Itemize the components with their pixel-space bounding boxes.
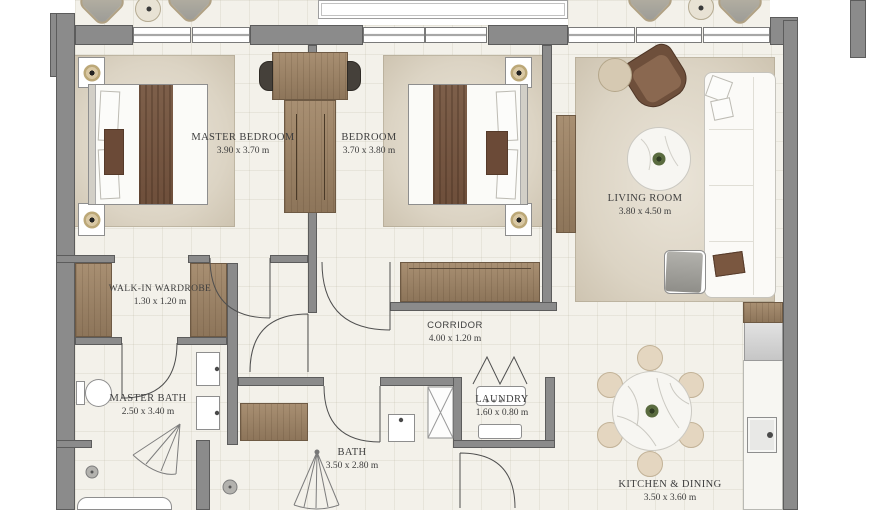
kitchen-sink <box>747 417 777 453</box>
bathtub <box>77 497 172 510</box>
plant-icon <box>646 405 659 418</box>
label-corridor: CORRIDOR 4.00 x 1.20 m <box>427 320 483 346</box>
nightstand <box>505 203 532 236</box>
toilet-tank <box>76 381 85 405</box>
kitchen-shelf <box>743 302 783 323</box>
label-laundry: LAUNDRY 1.60 x 0.80 m <box>475 393 529 420</box>
lamp-icon <box>83 211 100 228</box>
wardrobe-closet <box>75 263 112 337</box>
nightstand <box>78 203 105 236</box>
sofa-backrest-line <box>753 77 754 295</box>
side-table <box>598 58 632 92</box>
wall-laundry-east <box>545 377 555 448</box>
dresser <box>400 262 540 302</box>
master-bed <box>88 84 208 205</box>
lamp-icon <box>510 64 527 81</box>
sofa-cushion-line <box>709 129 753 130</box>
desk-chair-icon <box>347 61 361 91</box>
sofa-pillow <box>710 97 734 121</box>
wall-living-divider <box>542 45 552 310</box>
wall-exterior <box>850 0 866 58</box>
floor-plan: MASTER BEDROOM 3.90 x 3.70 m BEDROOM 3.7… <box>0 0 880 510</box>
wardrobe-handle <box>324 114 325 200</box>
window <box>192 27 250 43</box>
lamp-icon <box>83 64 100 81</box>
sofa-cushion-line <box>709 241 753 242</box>
dining-chair <box>637 451 663 477</box>
wall <box>270 255 308 263</box>
wall-bedroom-south <box>390 302 557 311</box>
fridge <box>744 322 783 361</box>
window <box>133 27 191 43</box>
bed-blanket <box>139 85 173 204</box>
coffee-table <box>627 127 691 191</box>
lamp-icon <box>510 211 527 228</box>
label-kitchen-dining: KITCHEN & DINING 3.50 x 3.60 m <box>618 478 721 505</box>
wall-wardrobe-east <box>227 263 238 445</box>
bath-sink <box>388 414 415 442</box>
window <box>703 27 770 43</box>
label-master-bedroom: MASTER BEDROOM 3.90 x 3.70 m <box>191 131 294 158</box>
wall-right <box>783 20 798 510</box>
tv-console <box>556 115 576 233</box>
bed-throw <box>104 129 124 175</box>
wall-top <box>75 25 133 45</box>
dresser-handle <box>409 268 531 269</box>
wall-top <box>488 25 568 45</box>
window <box>568 27 635 43</box>
exterior-void <box>318 0 568 19</box>
dining-chair <box>637 345 663 371</box>
label-master-bath: MASTER BATH 2.50 x 3.40 m <box>109 392 186 419</box>
wall-laundry-west <box>453 377 462 448</box>
wall <box>56 255 115 263</box>
wardrobe-handle <box>296 114 297 200</box>
window <box>425 27 487 43</box>
bathroom-sink <box>196 396 220 430</box>
wall-bath-divider <box>196 440 210 510</box>
label-walk-in-wardrobe: WALK-IN WARDROBE 1.30 x 1.20 m <box>109 283 212 309</box>
wall-corridor-south <box>238 377 324 386</box>
wall <box>56 440 92 448</box>
sofa-cushion-line <box>709 185 753 186</box>
wall-corridor-south <box>380 377 455 386</box>
bed-blanket <box>433 85 467 204</box>
window <box>363 27 425 43</box>
wall-top <box>250 25 363 45</box>
wall-laundry-south <box>453 440 555 448</box>
sofa-brown-pillow <box>713 251 746 277</box>
bathroom-sink <box>196 352 220 386</box>
toilet <box>85 379 112 407</box>
headboard <box>89 85 96 204</box>
label-bedroom: BEDROOM 3.70 x 3.80 m <box>341 131 396 158</box>
shared-desk <box>272 52 348 100</box>
bath-vanity <box>240 403 308 441</box>
wall <box>75 337 122 345</box>
label-bath: BATH 3.50 x 2.80 m <box>326 446 379 473</box>
dryer <box>478 424 522 439</box>
window <box>636 27 702 43</box>
desk-chair-icon <box>259 61 273 91</box>
wall <box>177 337 227 345</box>
headboard <box>520 85 527 204</box>
bed-throw <box>486 131 508 175</box>
wall <box>188 255 210 263</box>
dining-table <box>612 371 692 451</box>
gray-throw <box>665 251 703 293</box>
label-living-room: LIVING ROOM 3.80 x 4.50 m <box>608 192 683 219</box>
plant-icon <box>653 153 666 166</box>
bedroom-bed <box>408 84 528 205</box>
